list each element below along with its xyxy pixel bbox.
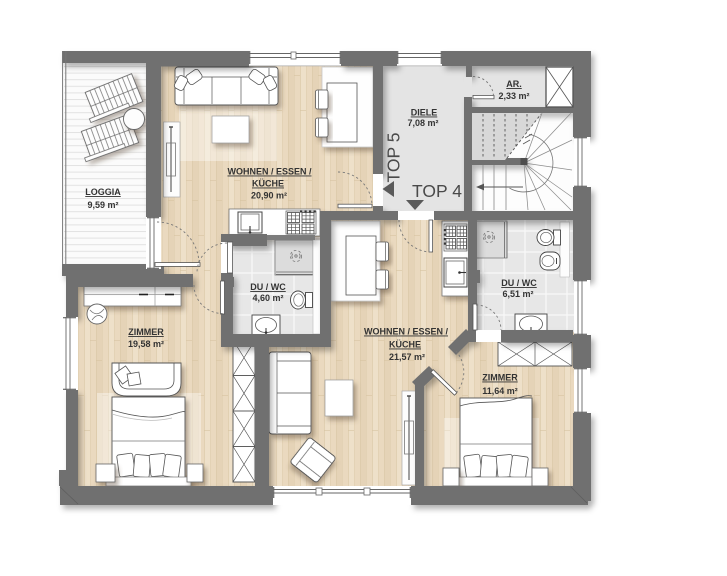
svg-text:ZIMMER: ZIMMER bbox=[482, 373, 518, 383]
svg-text:20,90 m²: 20,90 m² bbox=[251, 191, 287, 201]
svg-text:4,60 m²: 4,60 m² bbox=[252, 293, 283, 303]
svg-text:KÜCHE: KÜCHE bbox=[252, 179, 284, 189]
svg-text:WOHNEN / ESSEN /: WOHNEN / ESSEN / bbox=[227, 167, 312, 177]
svg-text:ZIMMER: ZIMMER bbox=[128, 327, 164, 337]
svg-text:DU / WC: DU / WC bbox=[250, 282, 286, 292]
svg-text:7,08 m²: 7,08 m² bbox=[407, 118, 438, 128]
svg-text:2,33 m²: 2,33 m² bbox=[498, 91, 529, 101]
svg-text:DIELE: DIELE bbox=[411, 108, 438, 118]
svg-text:19,58 m²: 19,58 m² bbox=[128, 339, 164, 349]
svg-text:TOP 5: TOP 5 bbox=[384, 133, 404, 183]
svg-text:LOGGIA: LOGGIA bbox=[85, 187, 121, 197]
svg-text:9,59 m²: 9,59 m² bbox=[87, 200, 118, 210]
svg-text:AR.: AR. bbox=[506, 79, 522, 89]
svg-text:11,64 m²: 11,64 m² bbox=[482, 386, 518, 396]
svg-text:KÜCHE: KÜCHE bbox=[389, 340, 421, 350]
svg-text:21,57 m²: 21,57 m² bbox=[389, 352, 425, 362]
svg-text:TOP 4: TOP 4 bbox=[412, 181, 462, 201]
svg-text:WOHNEN / ESSEN /: WOHNEN / ESSEN / bbox=[364, 327, 449, 337]
svg-text:6,51 m²: 6,51 m² bbox=[502, 289, 533, 299]
svg-text:DU / WC: DU / WC bbox=[501, 278, 537, 288]
